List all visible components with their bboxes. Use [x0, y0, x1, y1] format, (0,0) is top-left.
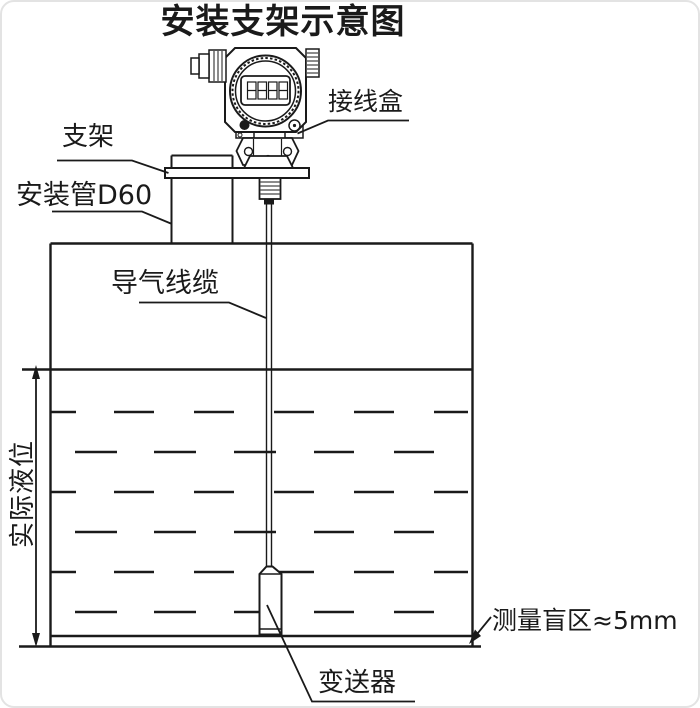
- leader-bracket: [57, 161, 169, 174]
- tank-outline: [19, 244, 481, 647]
- diagram-title: 安装支架示意图: [142, 4, 424, 41]
- screw-icon: [240, 120, 250, 130]
- leader-junction-box: [298, 121, 410, 134]
- transmitter-head-icon: [165, 48, 319, 205]
- probe-transmitter-icon: [260, 567, 282, 635]
- label-blind-zone: 测量盲区≈5mm: [492, 607, 678, 635]
- leader-mounting-pipe: [52, 212, 172, 225]
- lcd-display-icon: [241, 76, 290, 105]
- side-connector-icon: [306, 49, 319, 77]
- label-vent-cable: 导气线缆: [111, 269, 219, 299]
- leader-vent-cable: [139, 303, 266, 319]
- diagram-page: 安装支架示意图 接线盒 支架 安装管D60 导气线缆 实际液位 测量盲区≈5mm…: [0, 0, 700, 708]
- bracket-plate: [165, 168, 309, 178]
- label-junction-box: 接线盒: [328, 88, 403, 116]
- process-connection-icon: [237, 138, 299, 168]
- label-bracket: 支架: [62, 123, 114, 152]
- label-mounting-pipe: 安装管D60: [16, 181, 152, 211]
- label-transmitter: 变送器: [318, 669, 396, 698]
- label-actual-level: 实际液位: [9, 438, 37, 550]
- vent-cable-line: [267, 202, 272, 568]
- threaded-nipple-icon: [260, 178, 281, 205]
- cable-gland-icon: [191, 50, 226, 82]
